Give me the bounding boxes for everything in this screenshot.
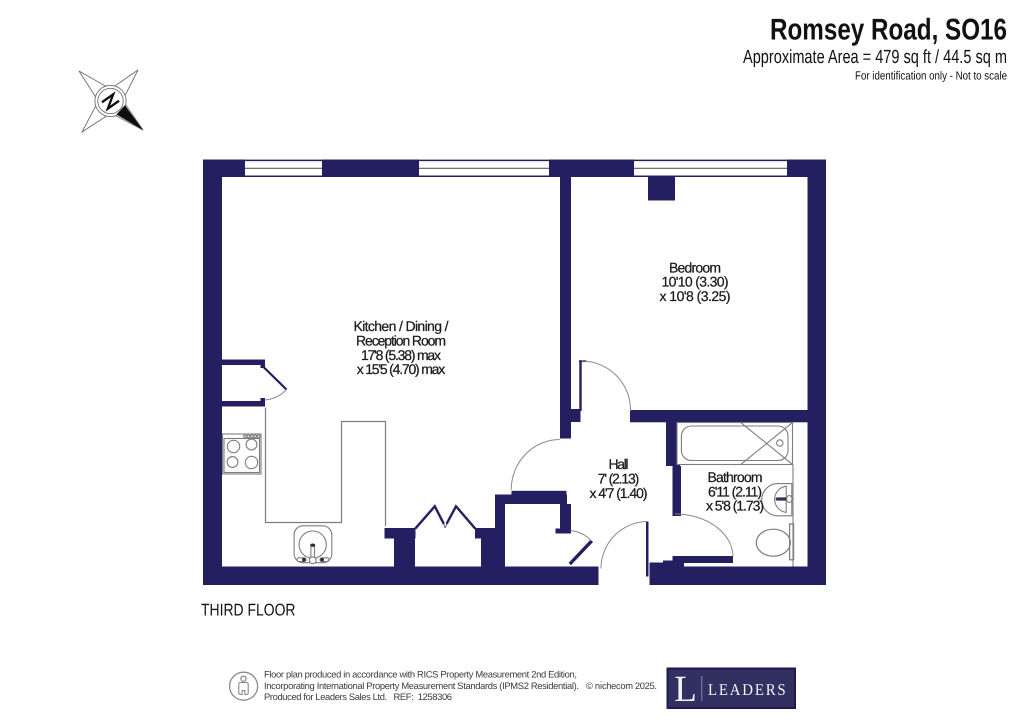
svg-text:Floor plan produced in accorda: Floor plan produced in accordance with R… (264, 669, 577, 680)
svg-text:Romsey Road, SO16: Romsey Road, SO16 (770, 14, 1007, 47)
svg-text:© nı̇checom 2025.: © nı̇checom 2025. (586, 680, 657, 691)
svg-text:x 4'7 (1.40): x 4'7 (1.40) (590, 485, 648, 501)
svg-text:L: L (674, 669, 697, 710)
svg-text:Incorporating International Pr: Incorporating International Property Mea… (264, 680, 579, 691)
svg-text:Approximate Area = 479 sq ft /: Approximate Area = 479 sq ft / 44.5 sq m (743, 47, 1007, 68)
svg-text:THIRD FLOOR: THIRD FLOOR (201, 601, 296, 620)
svg-text:LEADERS: LEADERS (708, 680, 788, 699)
svg-text:Kitchen / Dining /: Kitchen / Dining / (354, 318, 449, 334)
svg-text:x 15'5 (4.70) max: x 15'5 (4.70) max (357, 361, 446, 377)
svg-text:x 10'8 (3.25): x 10'8 (3.25) (660, 288, 731, 304)
svg-text:Produced for Leaders Sales Ltd: Produced for Leaders Sales Ltd. REF: 125… (264, 691, 452, 702)
svg-text:For identification only - Not: For identification only - Not to scale (855, 69, 1007, 83)
svg-text:x 5'8 (1.73): x 5'8 (1.73) (706, 498, 764, 514)
